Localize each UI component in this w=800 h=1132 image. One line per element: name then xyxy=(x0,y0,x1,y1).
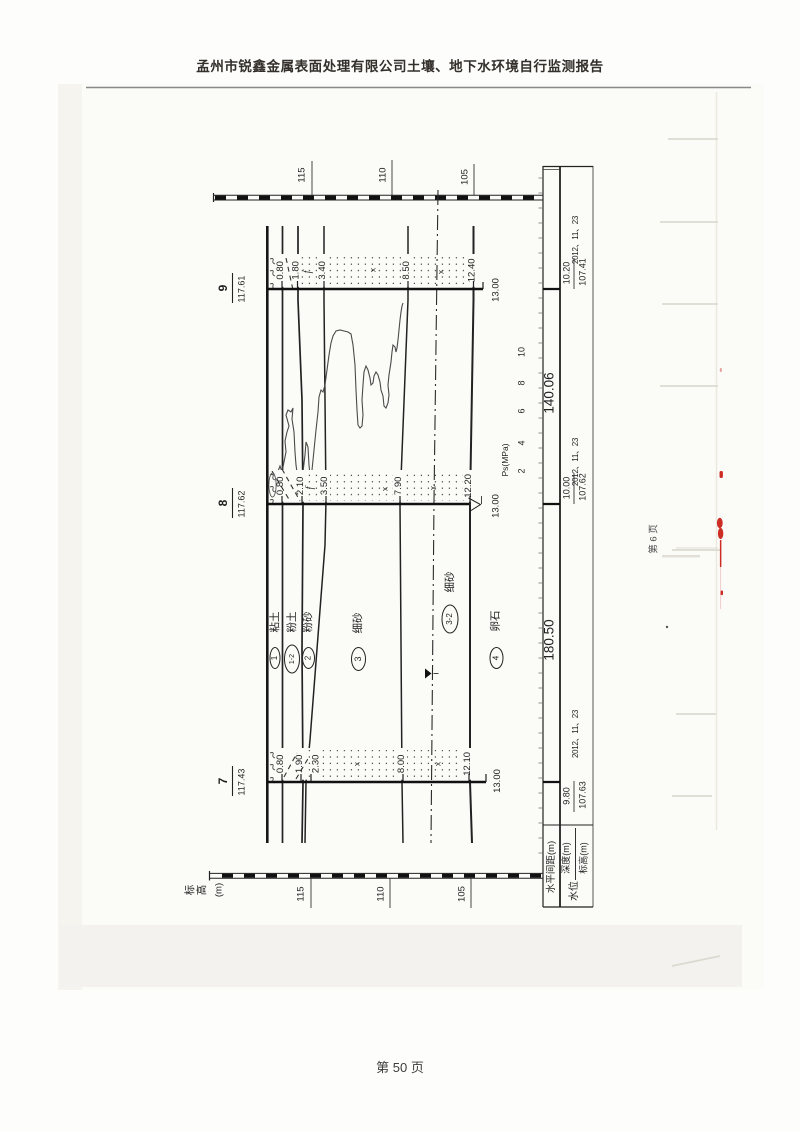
svg-text:2: 2 xyxy=(516,468,526,473)
svg-text:3.50: 3.50 xyxy=(319,477,330,496)
svg-text:6: 6 xyxy=(516,408,526,413)
svg-text:105: 105 xyxy=(460,169,471,185)
svg-text:13.00: 13.00 xyxy=(491,494,502,518)
svg-text:110: 110 xyxy=(376,886,387,901)
svg-text:0.80: 0.80 xyxy=(275,755,286,774)
svg-text:3: 3 xyxy=(353,656,363,661)
svg-text:4: 4 xyxy=(492,655,501,660)
svg-text:第 50 页: 第 50 页 xyxy=(376,1060,424,1075)
svg-text:2012、11、23: 2012、11、23 xyxy=(571,437,580,486)
svg-text:2.10: 2.10 xyxy=(295,477,306,496)
svg-text:1.90: 1.90 xyxy=(294,755,305,774)
svg-text:孟州市锐鑫金属表面处理有限公司土壤、地下水环境自行监测报告: 孟州市锐鑫金属表面处理有限公司土壤、地下水环境自行监测报告 xyxy=(196,58,603,74)
svg-text:粘土: 粘土 xyxy=(268,612,281,633)
svg-text:180.50: 180.50 xyxy=(542,619,557,660)
svg-text:粉土: 粉土 xyxy=(285,612,298,633)
svg-text:0.80: 0.80 xyxy=(275,261,286,280)
svg-text:10.20: 10.20 xyxy=(561,262,571,285)
svg-text:1.80: 1.80 xyxy=(291,261,302,280)
svg-text:高: 高 xyxy=(195,885,208,896)
svg-text:13.00: 13.00 xyxy=(492,769,503,793)
svg-text:110: 110 xyxy=(378,167,389,182)
svg-text:107.63: 107.63 xyxy=(577,781,587,809)
svg-text:3.40: 3.40 xyxy=(317,261,328,280)
svg-text:4: 4 xyxy=(516,440,526,445)
svg-text:水平间距(m): 水平间距(m) xyxy=(545,841,557,893)
svg-text:8.50: 8.50 xyxy=(401,261,412,280)
svg-text:1: 1 xyxy=(270,655,279,660)
svg-text:117.43: 117.43 xyxy=(236,769,246,796)
svg-text:7.90: 7.90 xyxy=(393,477,404,496)
svg-text:115: 115 xyxy=(297,167,308,182)
svg-text:第 6 页: 第 6 页 xyxy=(648,524,660,554)
svg-text:115: 115 xyxy=(296,886,307,901)
svg-text:2012、11、23: 2012、11、23 xyxy=(571,709,580,758)
svg-text:2012、11、23: 2012、11、23 xyxy=(571,215,580,264)
svg-text:10.00: 10.00 xyxy=(561,477,571,500)
svg-text:水位: 水位 xyxy=(567,881,580,901)
svg-text:2: 2 xyxy=(304,655,313,660)
svg-text:细砂: 细砂 xyxy=(351,612,364,633)
svg-text:粉砂: 粉砂 xyxy=(301,611,314,632)
svg-text:9.80: 9.80 xyxy=(561,787,571,805)
svg-text:8.00: 8.00 xyxy=(396,755,407,774)
svg-text:117.61: 117.61 xyxy=(236,276,246,303)
svg-text:7: 7 xyxy=(216,777,230,784)
svg-text:卵石: 卵石 xyxy=(489,611,501,632)
svg-text:105: 105 xyxy=(457,886,468,902)
svg-text:Ps(MPa): Ps(MPa) xyxy=(500,443,510,476)
svg-text:13.00: 13.00 xyxy=(491,278,502,302)
svg-text:117.62: 117.62 xyxy=(236,491,246,518)
svg-text:1-2: 1-2 xyxy=(289,654,296,664)
svg-text:8: 8 xyxy=(516,380,526,385)
svg-text:12.40: 12.40 xyxy=(467,258,478,282)
svg-text:9: 9 xyxy=(216,284,230,291)
svg-text:12.10: 12.10 xyxy=(462,752,473,776)
svg-text:2.30: 2.30 xyxy=(311,755,322,774)
svg-text:10: 10 xyxy=(516,347,526,357)
svg-text:细砂: 细砂 xyxy=(443,571,456,592)
svg-text:标: 标 xyxy=(184,884,196,895)
svg-text:8: 8 xyxy=(216,499,230,506)
svg-text:3-2: 3-2 xyxy=(445,613,454,625)
svg-text:深度(m): 深度(m) xyxy=(560,842,571,874)
svg-text:标高(m): 标高(m) xyxy=(577,842,588,874)
svg-text:12.20: 12.20 xyxy=(463,474,474,498)
svg-text:(m): (m) xyxy=(214,883,225,897)
svg-text:140.06: 140.06 xyxy=(542,372,557,413)
